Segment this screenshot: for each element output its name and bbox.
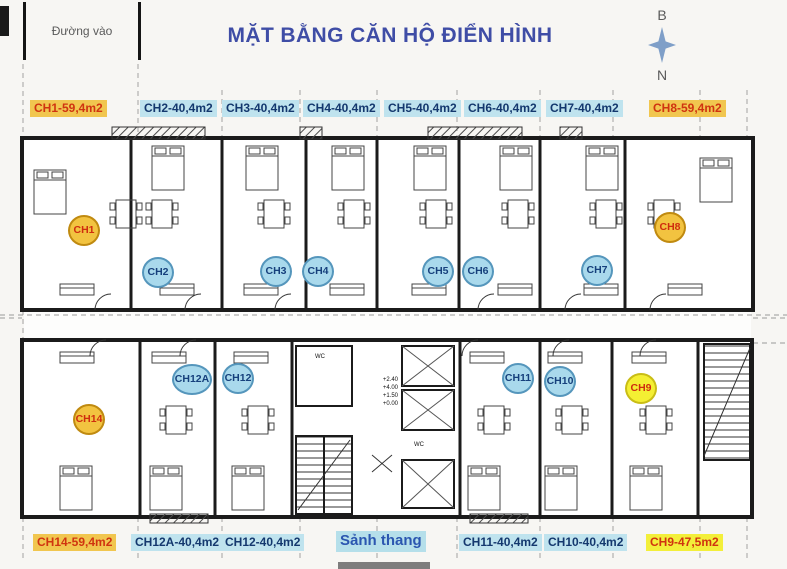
unit-area-label-ch11: CH11-40,4m2: [459, 534, 542, 551]
wc-label: WC: [414, 442, 425, 448]
compass-north-label: B: [657, 7, 666, 23]
lobby-label: Sảnh thang: [336, 531, 426, 552]
entrance-road-label: Đường vào: [52, 24, 113, 38]
unit-area-label-ch1: CH1-59,4m2: [30, 100, 107, 117]
unit-area-label-ch10: CH10-40,4m2: [544, 534, 627, 551]
level-mark: +1.50: [383, 393, 399, 399]
floor-plan-page: +2.40 +4.00 +1.50 +0.00 WC WC Đường vào …: [0, 0, 787, 569]
floor-plan-drawing: +2.40 +4.00 +1.50 +0.00 WC WC: [0, 0, 787, 569]
unit-badge-ch7: CH7: [581, 255, 613, 286]
unit-badge-ch12: CH12: [222, 363, 254, 394]
unit-badge-ch1: CH1: [68, 215, 100, 246]
unit-area-label-ch12a: CH12A-40,4m2: [131, 534, 223, 551]
unit-area-label-ch4: CH4-40,4m2: [303, 100, 380, 117]
unit-badge-ch12a: CH12A: [172, 364, 212, 395]
unit-area-label-ch5: CH5-40,4m2: [384, 100, 461, 117]
unit-area-label-ch2: CH2-40,4m2: [140, 100, 217, 117]
unit-area-label-ch6: CH6-40,4m2: [464, 100, 541, 117]
unit-area-label-ch3: CH3-40,4m2: [222, 100, 299, 117]
unit-area-label-ch14: CH14-59,4m2: [33, 534, 116, 551]
unit-badge-ch3: CH3: [260, 256, 292, 287]
unit-area-label-ch12: CH12-40,4m2: [221, 534, 304, 551]
page-title: MẶT BẰNG CĂN HỘ ĐIỂN HÌNH: [180, 24, 600, 48]
level-mark: +4.00: [383, 385, 399, 391]
wc-label: WC: [315, 354, 326, 360]
unit-area-label-ch9: CH9-47,5m2: [646, 534, 723, 551]
unit-badge-ch4: CH4: [302, 256, 334, 287]
level-mark: +0.00: [383, 401, 399, 407]
level-mark: +2.40: [383, 377, 399, 383]
unit-area-label-ch7: CH7-40,4m2: [546, 100, 623, 117]
unit-badge-ch6: CH6: [462, 256, 494, 287]
unit-badge-ch11: CH11: [502, 363, 534, 394]
compass: B N: [636, 8, 688, 82]
unit-area-label-ch8: CH8-59,4m2: [649, 100, 726, 117]
unit-badge-ch2: CH2: [142, 257, 174, 288]
scan-artifact: [338, 562, 430, 569]
compass-south-label: N: [657, 67, 667, 83]
unit-badge-ch14: CH14: [73, 404, 105, 435]
compass-star-icon: [645, 25, 679, 65]
entrance-road-box: Đường vào: [23, 2, 141, 60]
building-walls: [0, 127, 787, 523]
scan-artifact: [0, 6, 9, 36]
unit-badge-ch9: CH9: [625, 373, 657, 404]
unit-badge-ch5: CH5: [422, 256, 454, 287]
unit-badge-ch8: CH8: [654, 212, 686, 243]
unit-badge-ch10: CH10: [544, 366, 576, 397]
